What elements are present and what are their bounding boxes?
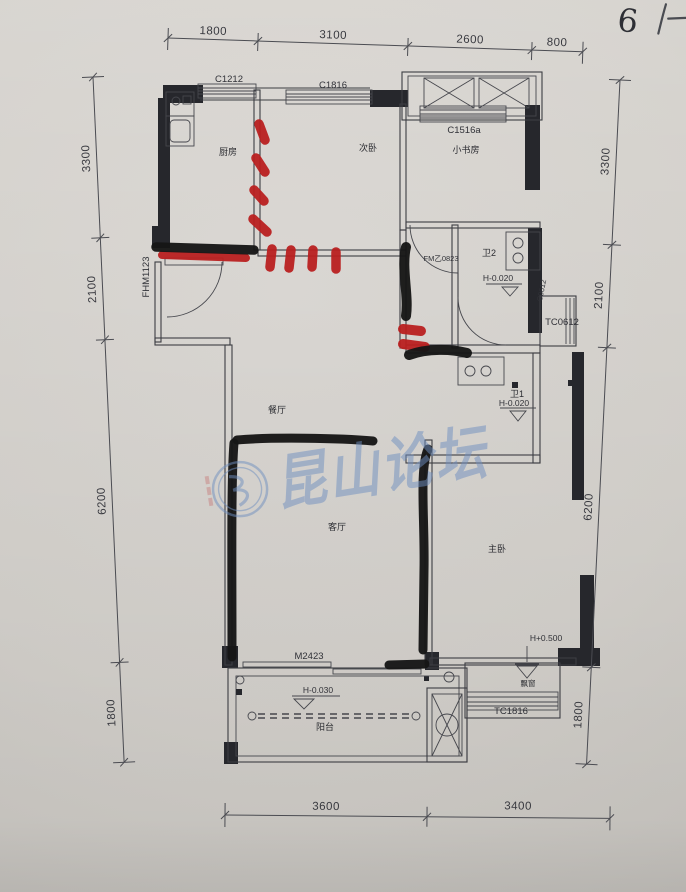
handwriting-layer: 6 — [0, 0, 686, 892]
handwritten-stroke — [658, 4, 666, 34]
floorplan-photo: 1800 3100 2600 800 3600 3400 — [0, 0, 686, 892]
handwritten-number: 6 — [615, 1, 640, 41]
handwritten-dash — [668, 16, 686, 21]
